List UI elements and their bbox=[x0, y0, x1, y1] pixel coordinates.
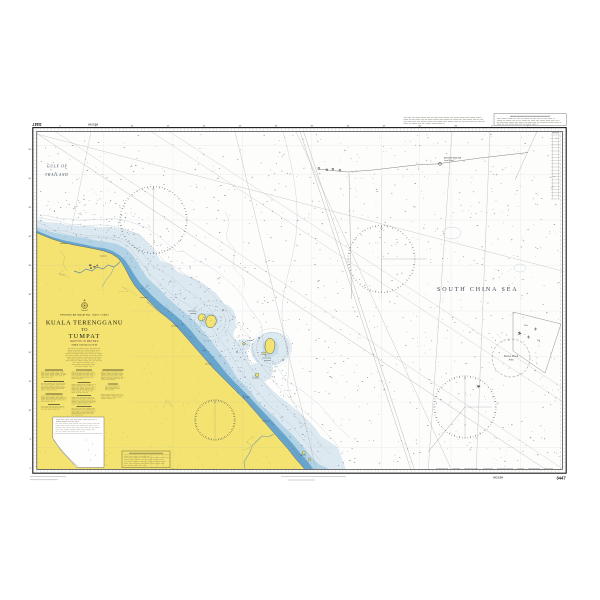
svg-text:DEPTHS IN METRES: DEPTHS IN METRES bbox=[70, 340, 98, 343]
svg-text:THAILAND: THAILAND bbox=[45, 173, 69, 177]
svg-text:(see Note): (see Note) bbox=[444, 159, 454, 162]
svg-text:3447: 3447 bbox=[556, 475, 566, 480]
svg-text:DEPTHS: DEPTHS bbox=[552, 133, 560, 135]
svg-text:Former Mined: Former Mined bbox=[504, 355, 519, 358]
svg-text:WGS84: WGS84 bbox=[88, 122, 99, 126]
svg-text:GULF OF: GULF OF bbox=[47, 165, 68, 169]
svg-text:PENINSULAR MALAYSIA - EAST COA: PENINSULAR MALAYSIA - EAST COAST bbox=[60, 314, 109, 317]
svg-text:SCALE 1:200 000 at lat 6°00': SCALE 1:200 000 at lat 6°00' bbox=[72, 343, 99, 346]
svg-text:TUMPAT: TUMPAT bbox=[69, 333, 101, 340]
svg-text:Area: Area bbox=[509, 359, 515, 362]
svg-text:WGS84: WGS84 bbox=[493, 475, 504, 479]
svg-text:TO: TO bbox=[81, 327, 88, 332]
svg-text:SOUTH CHINA SEA: SOUTH CHINA SEA bbox=[437, 287, 519, 293]
svg-text:Wks: Wks bbox=[524, 325, 528, 327]
svg-text:KUALA TERENGGANU: KUALA TERENGGANU bbox=[46, 320, 123, 327]
svg-text:3447: 3447 bbox=[32, 122, 42, 127]
